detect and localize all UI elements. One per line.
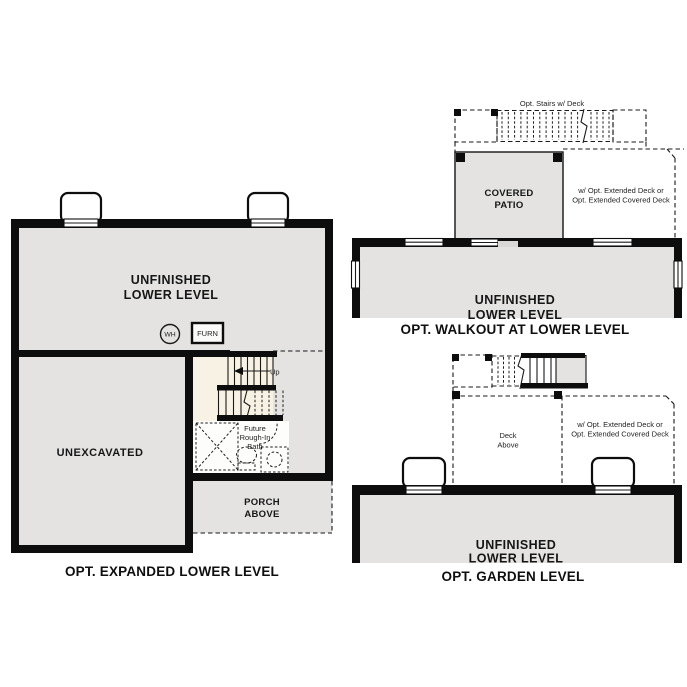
deck-note-line2: Opt. Extended Covered Deck bbox=[572, 196, 670, 205]
side-wall-window bbox=[674, 261, 682, 288]
up-label: Up bbox=[270, 368, 280, 377]
porch-label-line2: ABOVE bbox=[244, 509, 279, 520]
wall-middle bbox=[11, 350, 230, 357]
unfinished-label-line2: LOWER LEVEL bbox=[124, 288, 219, 302]
deck-note-line2: Opt. Extended Covered Deck bbox=[571, 430, 669, 439]
floor-plan-sheet: Up bbox=[0, 0, 687, 687]
wall-bath-bottom bbox=[185, 473, 333, 481]
wall-left bbox=[352, 485, 360, 563]
garden-plan-caption: OPT. GARDEN LEVEL bbox=[442, 569, 585, 584]
unfinished-label-line2: LOWER LEVEL bbox=[468, 308, 563, 322]
walkout-lower-level-plan: Opt. Stairs w/ Deck bbox=[352, 99, 685, 337]
bath-label-line3: Bath bbox=[247, 442, 262, 451]
stair-bottom-bar bbox=[217, 415, 283, 421]
opt-stairs-dashed bbox=[454, 109, 646, 152]
unexcavated-label: UNEXCAVATED bbox=[57, 447, 144, 459]
wall-right bbox=[325, 219, 333, 481]
deck-above-label-line2: Above bbox=[497, 441, 518, 450]
patio-post bbox=[456, 153, 465, 162]
unfinished-label-line2: LOWER LEVEL bbox=[469, 552, 564, 566]
bath-label-line1: Future bbox=[244, 424, 266, 433]
top-wall-window bbox=[595, 486, 631, 494]
side-wall-window bbox=[352, 261, 360, 288]
unfinished-label-line1: UNFINISHED bbox=[476, 538, 556, 552]
top-wall-window bbox=[64, 219, 98, 227]
unfinished-label-line1: UNFINISHED bbox=[131, 273, 211, 287]
top-wall-window bbox=[593, 239, 632, 247]
furn-label: FURN bbox=[197, 329, 218, 338]
top-wall-window bbox=[251, 219, 285, 227]
patio-door-opening bbox=[498, 241, 518, 247]
porch-label-line1: PORCH bbox=[244, 497, 280, 508]
bath-label-line2: Rough-In bbox=[240, 433, 271, 442]
expanded-lower-level-plan: Up bbox=[11, 193, 333, 579]
top-wall-window bbox=[406, 486, 442, 494]
deck-post bbox=[554, 391, 562, 399]
furnace-symbol: FURN bbox=[192, 323, 223, 343]
stair-mid-bar bbox=[217, 385, 276, 391]
stair-structure bbox=[452, 353, 588, 396]
deck-post bbox=[452, 391, 460, 399]
wall-top bbox=[352, 485, 682, 495]
patio-label-line1: COVERED bbox=[484, 188, 533, 199]
unfinished-label-line1: UNFINISHED bbox=[475, 293, 555, 307]
stair-landing bbox=[556, 356, 586, 386]
wh-label: WH bbox=[164, 332, 175, 339]
deck-above-label-line1: Deck bbox=[499, 431, 516, 440]
top-wall-window bbox=[405, 239, 443, 247]
deck-note-line1: w/ Opt. Extended Deck or bbox=[576, 420, 663, 429]
walkout-plan-caption: OPT. WALKOUT AT LOWER LEVEL bbox=[401, 322, 630, 337]
wall-bottom bbox=[11, 545, 193, 553]
wall-left bbox=[11, 219, 19, 553]
wall-unexcavated-right bbox=[185, 350, 193, 553]
deck-note-line1: w/ Opt. Extended Deck or bbox=[577, 186, 664, 195]
stair-top-bar bbox=[226, 351, 277, 357]
patio-label-line2: PATIO bbox=[494, 200, 523, 211]
stair-break-line bbox=[581, 109, 587, 143]
garden-level-plan: Deck Above w/ Opt. Extended Deck or Opt.… bbox=[352, 353, 682, 584]
window-well bbox=[403, 458, 445, 488]
patio-post bbox=[553, 153, 562, 162]
floor-plan-drawing: Up bbox=[0, 0, 687, 687]
bath-area-fill bbox=[193, 421, 289, 473]
window-well bbox=[592, 458, 634, 488]
opt-stairs-note: Opt. Stairs w/ Deck bbox=[520, 99, 584, 108]
top-wall-window bbox=[471, 239, 498, 246]
wall-right bbox=[674, 485, 682, 563]
expanded-plan-caption: OPT. EXPANDED LOWER LEVEL bbox=[65, 564, 279, 579]
